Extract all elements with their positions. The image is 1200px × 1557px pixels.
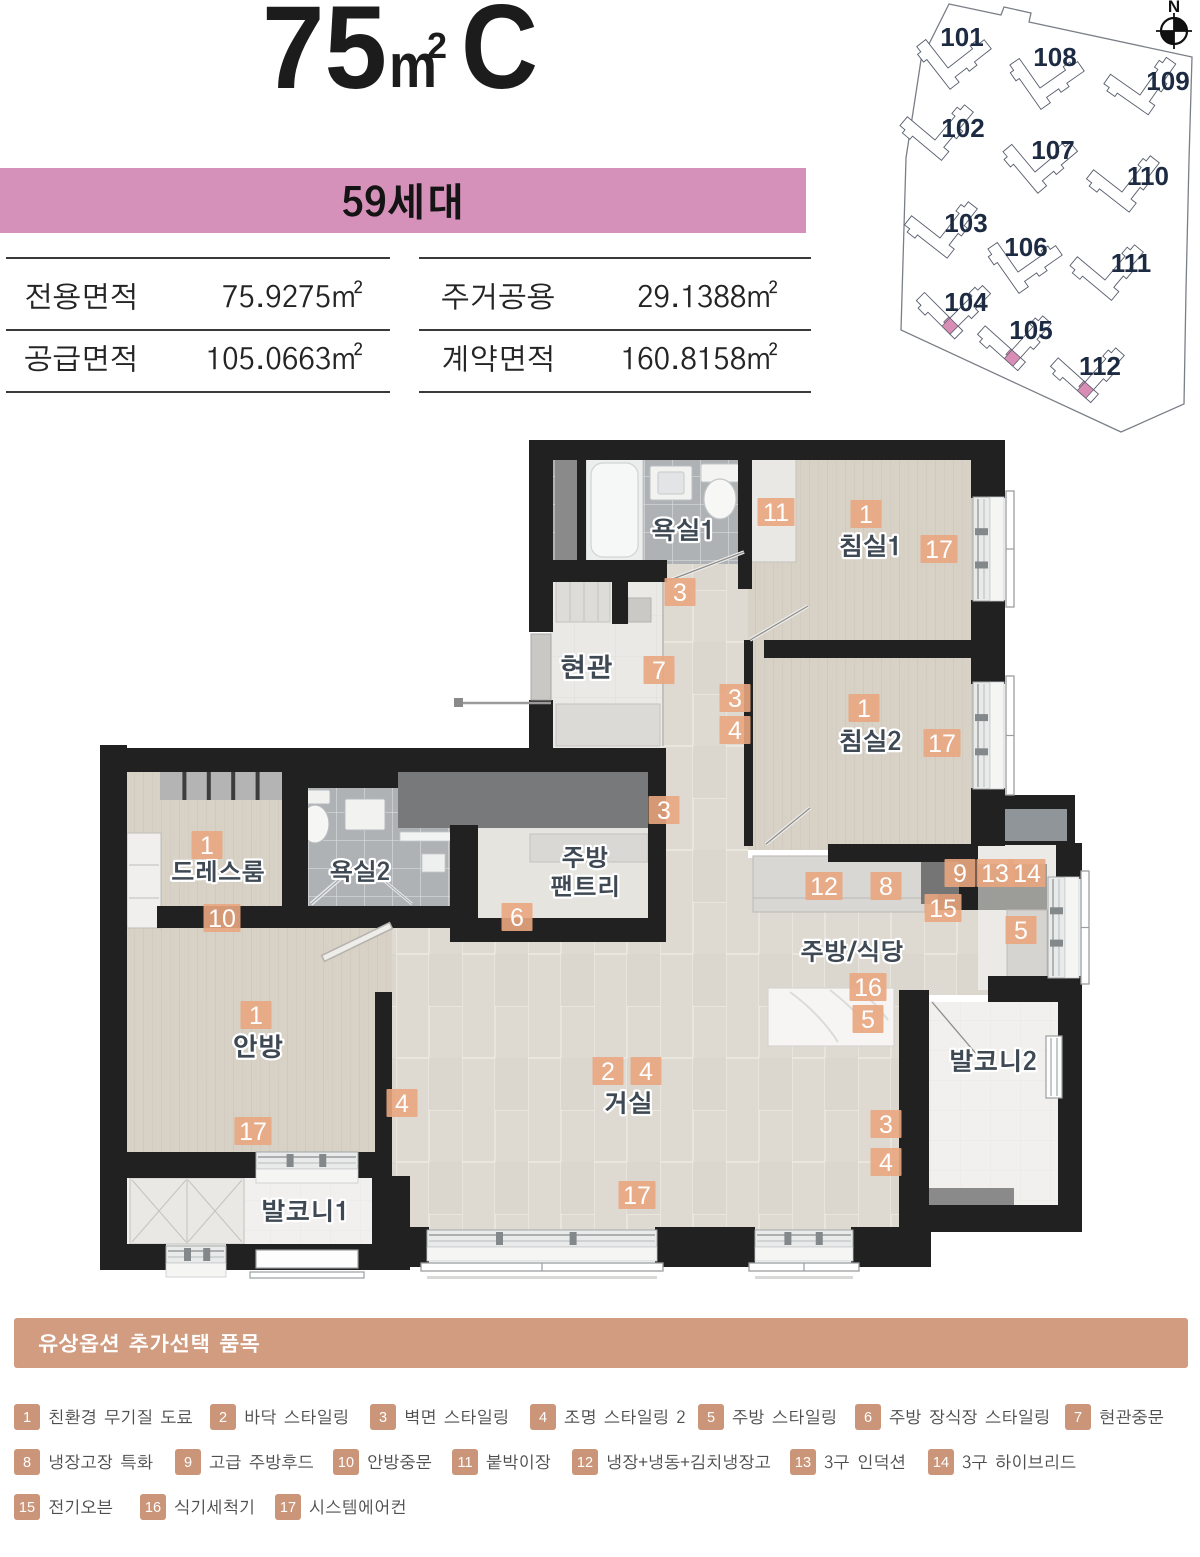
svg-text:2: 2	[219, 1410, 227, 1426]
svg-text:111: 111	[1111, 248, 1152, 278]
svg-text:15: 15	[19, 1500, 35, 1516]
svg-text:112: 112	[1079, 351, 1121, 381]
svg-text:16: 16	[145, 1500, 161, 1516]
svg-text:105: 105	[1009, 315, 1052, 345]
svg-text:1: 1	[23, 1410, 31, 1426]
svg-text:1: 1	[859, 501, 873, 529]
svg-text:1: 1	[857, 695, 871, 723]
svg-text:103: 103	[944, 208, 987, 238]
svg-text:3: 3	[728, 685, 742, 713]
svg-text:17: 17	[280, 1500, 296, 1516]
svg-text:14: 14	[1013, 860, 1041, 888]
svg-text:15: 15	[929, 895, 957, 923]
svg-text:9: 9	[953, 860, 967, 888]
svg-text:17: 17	[925, 536, 953, 564]
svg-text:13: 13	[981, 860, 1009, 888]
svg-text:12: 12	[577, 1455, 593, 1471]
svg-text:C: C	[461, 0, 538, 114]
svg-text:17: 17	[928, 730, 956, 758]
svg-text:75: 75	[262, 0, 387, 114]
svg-text:7: 7	[652, 657, 666, 685]
svg-text:13: 13	[795, 1455, 811, 1471]
svg-text:104: 104	[944, 287, 988, 317]
svg-text:11: 11	[763, 499, 789, 527]
svg-text:3: 3	[657, 797, 671, 825]
svg-text:3: 3	[379, 1410, 387, 1426]
svg-text:4: 4	[879, 1149, 893, 1177]
svg-text:3: 3	[879, 1111, 893, 1139]
svg-text:5: 5	[861, 1006, 875, 1034]
svg-text:101: 101	[940, 22, 983, 52]
svg-text:1: 1	[249, 1002, 263, 1030]
svg-text:5: 5	[1014, 917, 1028, 945]
svg-text:102: 102	[941, 113, 984, 143]
svg-text:1: 1	[200, 832, 214, 860]
svg-text:14: 14	[933, 1455, 949, 1471]
svg-text:6: 6	[864, 1410, 872, 1426]
svg-text:10: 10	[338, 1455, 354, 1471]
svg-text:109: 109	[1146, 66, 1189, 96]
svg-text:7: 7	[1074, 1410, 1082, 1426]
svg-text:4: 4	[639, 1058, 653, 1086]
svg-text:5: 5	[707, 1410, 715, 1426]
svg-text:4: 4	[395, 1090, 409, 1118]
svg-text:17: 17	[623, 1182, 651, 1210]
svg-text:106: 106	[1004, 232, 1047, 262]
svg-text:2: 2	[427, 25, 447, 66]
svg-text:10: 10	[208, 905, 236, 933]
svg-text:6: 6	[510, 904, 524, 932]
svg-text:4: 4	[539, 1410, 547, 1426]
svg-text:3: 3	[673, 579, 687, 607]
svg-text:8: 8	[23, 1455, 31, 1471]
svg-text:110: 110	[1127, 161, 1169, 191]
svg-text:8: 8	[879, 873, 893, 901]
svg-text:108: 108	[1033, 42, 1076, 72]
svg-text:17: 17	[239, 1118, 267, 1146]
svg-text:2: 2	[601, 1058, 615, 1086]
svg-text:9: 9	[184, 1455, 192, 1471]
svg-text:4: 4	[728, 717, 742, 745]
svg-text:16: 16	[854, 974, 882, 1002]
svg-text:12: 12	[810, 873, 838, 901]
svg-text:11: 11	[457, 1455, 472, 1471]
svg-text:107: 107	[1031, 135, 1074, 165]
